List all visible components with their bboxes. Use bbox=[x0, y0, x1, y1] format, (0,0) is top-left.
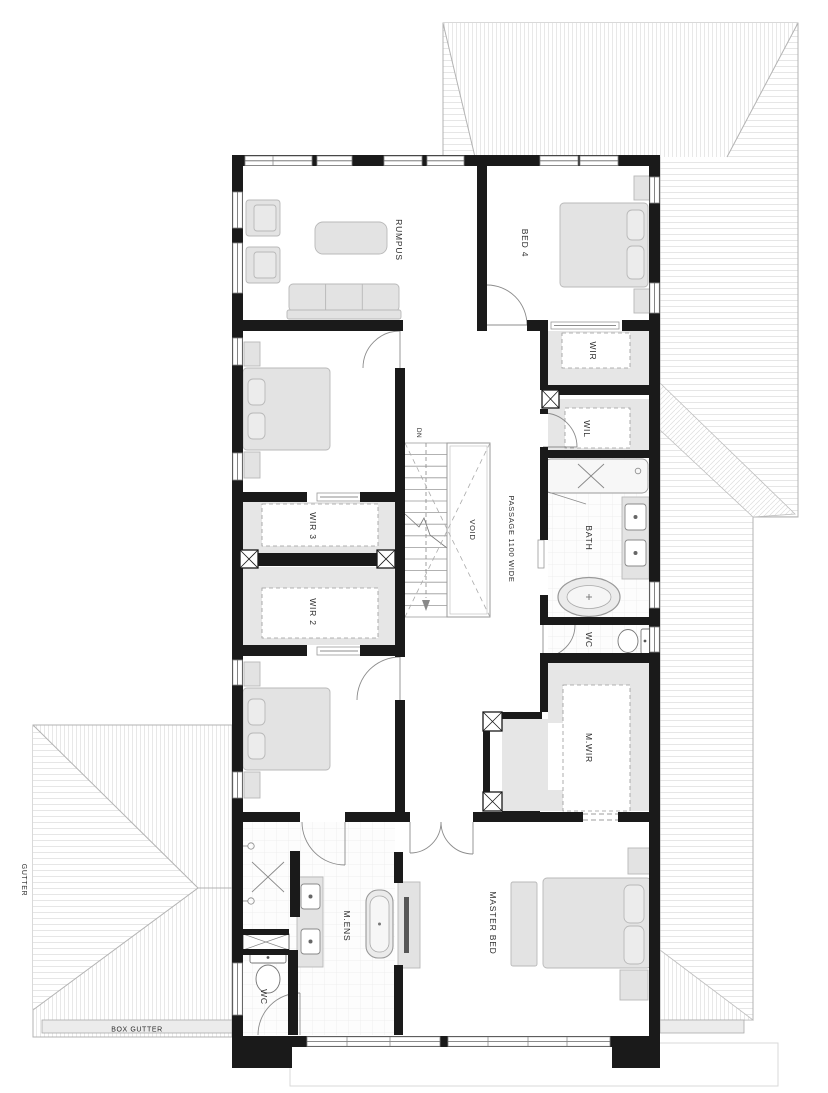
wall-service-west bbox=[540, 331, 548, 390]
basin-drain bbox=[309, 940, 313, 944]
bathtub-drain bbox=[378, 923, 381, 926]
wall-passage-west bbox=[395, 700, 405, 813]
wall-mwir-west bbox=[483, 731, 490, 792]
wall-master-row-top bbox=[243, 812, 300, 822]
window bbox=[233, 453, 243, 480]
wall-niche bbox=[243, 929, 289, 935]
wall-ensuite-divider bbox=[290, 851, 300, 917]
armchair-seat bbox=[254, 252, 276, 278]
sofa bbox=[287, 284, 401, 319]
label-void: VOID bbox=[468, 519, 477, 540]
pillow bbox=[248, 413, 265, 439]
mwir-shelf-left bbox=[502, 719, 548, 811]
window bbox=[233, 243, 243, 293]
wall-passage-west bbox=[395, 368, 405, 657]
window bbox=[307, 1037, 440, 1047]
room-label-wir3: WIR 3 bbox=[308, 512, 318, 540]
bedside-table bbox=[628, 848, 650, 874]
wall-mwir-step bbox=[502, 712, 542, 719]
window bbox=[233, 963, 243, 1015]
wall-stub bbox=[612, 1047, 660, 1068]
wall-master-row-top bbox=[345, 812, 410, 822]
pillow bbox=[627, 246, 644, 279]
room-label-master-bed: MASTER BED bbox=[488, 891, 498, 954]
toilet-bowl bbox=[618, 630, 638, 653]
basin-drain bbox=[309, 895, 313, 899]
lower-roof-outline bbox=[290, 1043, 778, 1086]
room-label-wc-upper: WC bbox=[584, 632, 594, 648]
label-stairs-dn: DN bbox=[415, 428, 422, 438]
wall-bath-bottom bbox=[540, 617, 649, 625]
room-label-bed4: BED 4 bbox=[520, 229, 530, 258]
column-x-icon bbox=[377, 550, 395, 568]
window bbox=[317, 156, 352, 166]
pillow bbox=[248, 699, 265, 725]
label-passage-width: PASSAGE 1100 WIDE bbox=[507, 495, 516, 582]
wall-mwir-bottom bbox=[502, 811, 540, 821]
window bbox=[427, 156, 464, 166]
armchair-seat bbox=[254, 205, 276, 231]
wall-wir2-bottom bbox=[360, 645, 405, 656]
window bbox=[650, 582, 660, 608]
wall-wil-bottom bbox=[548, 450, 649, 458]
wall-wc-lower bbox=[288, 950, 298, 1035]
label-gutter: GUTTER bbox=[20, 864, 27, 896]
wall bbox=[477, 320, 487, 331]
wall-wir3-top bbox=[243, 492, 307, 502]
window bbox=[650, 283, 660, 313]
toilet-button bbox=[644, 640, 647, 643]
bedside-table bbox=[634, 289, 650, 313]
wall-service-west bbox=[540, 447, 548, 540]
bath-shower bbox=[545, 459, 648, 493]
bedside-table bbox=[244, 662, 260, 686]
wir3-shelf-dashed bbox=[262, 504, 378, 546]
window bbox=[233, 338, 243, 365]
mwir-shelf-bottomleft bbox=[548, 790, 563, 811]
wall-wir2-bottom bbox=[243, 645, 307, 656]
bedside-table bbox=[620, 970, 648, 1000]
window bbox=[580, 156, 618, 166]
wall bbox=[622, 320, 649, 331]
room-label-wir2: WIR 2 bbox=[308, 598, 318, 626]
floor-plan-page: RUMPUS BED 4 WIR WIL BATH WC WIR 3 WIR 2… bbox=[0, 0, 828, 1093]
bedside-table bbox=[244, 452, 260, 478]
mwir-shelf-right bbox=[630, 685, 649, 811]
column-x-icon bbox=[240, 550, 258, 568]
window bbox=[448, 1037, 610, 1047]
slider-wir2 bbox=[317, 647, 361, 655]
wall-rumpus-bed4 bbox=[477, 166, 487, 323]
wall-ensuite-east bbox=[394, 852, 403, 883]
wall-mwir-west bbox=[540, 663, 548, 712]
window bbox=[233, 660, 243, 685]
wall-mwir-top bbox=[540, 653, 653, 663]
wall-wir3-wir2 bbox=[258, 553, 377, 566]
box-gutter-right bbox=[660, 1020, 744, 1033]
pillow bbox=[248, 379, 265, 405]
window bbox=[233, 772, 243, 798]
wall-niche bbox=[243, 949, 289, 955]
mwir-shelf-top bbox=[548, 663, 649, 685]
wall-ensuite-east bbox=[394, 965, 403, 1035]
pillow bbox=[624, 885, 644, 923]
mwir-dashed-opening bbox=[583, 812, 618, 822]
dresser-detail bbox=[404, 897, 409, 953]
wall-service-west bbox=[540, 409, 548, 414]
wir2-shelf-dashed bbox=[262, 588, 378, 638]
basin-drain bbox=[634, 515, 638, 519]
window bbox=[245, 156, 312, 166]
column-x-icon bbox=[483, 792, 502, 811]
wall-mwir-bottom bbox=[540, 812, 583, 822]
slider-wir3 bbox=[317, 493, 361, 501]
floor-plan-drawing: RUMPUS BED 4 WIR WIL BATH WC WIR 3 WIR 2… bbox=[0, 0, 828, 1093]
wall-mwir-bottom bbox=[618, 812, 660, 822]
toilet-button bbox=[267, 956, 270, 959]
room-label-bath: BATH bbox=[584, 525, 594, 550]
basin-drain bbox=[634, 551, 638, 555]
room-label-mens: M.ENS bbox=[342, 911, 352, 942]
window bbox=[384, 156, 422, 166]
wall bbox=[527, 320, 548, 331]
wall-wir3-top bbox=[360, 492, 405, 502]
slider-wir bbox=[551, 322, 619, 329]
wil-shelf-dashed bbox=[565, 408, 630, 448]
room-label-mwir: M.WIR bbox=[584, 733, 594, 763]
room-label-rumpus: RUMPUS bbox=[394, 219, 404, 261]
mwir-shelf-topleft bbox=[548, 663, 563, 723]
window bbox=[650, 177, 660, 203]
wall-wir-bottom bbox=[548, 385, 649, 395]
window bbox=[233, 192, 243, 228]
window bbox=[540, 156, 578, 166]
coffee-table bbox=[315, 222, 387, 254]
wall-stub bbox=[232, 1047, 292, 1068]
bedside-table bbox=[244, 342, 260, 366]
room-label-wc-lower: WC bbox=[259, 989, 269, 1005]
wall-rumpus-bottom bbox=[243, 320, 403, 331]
bedside-table bbox=[244, 772, 260, 798]
pillow bbox=[248, 733, 265, 759]
room-label-wir: WIR bbox=[588, 342, 598, 361]
bed-end-bench bbox=[511, 882, 537, 966]
pillow bbox=[627, 210, 644, 240]
pillow bbox=[624, 926, 644, 964]
column-x-icon bbox=[483, 712, 502, 731]
room-label-wil: WIL bbox=[582, 420, 592, 438]
bedside-table bbox=[634, 176, 650, 200]
column-x-icon bbox=[542, 390, 559, 408]
label-box-gutter: BOX GUTTER bbox=[111, 1027, 163, 1034]
window bbox=[650, 627, 660, 652]
